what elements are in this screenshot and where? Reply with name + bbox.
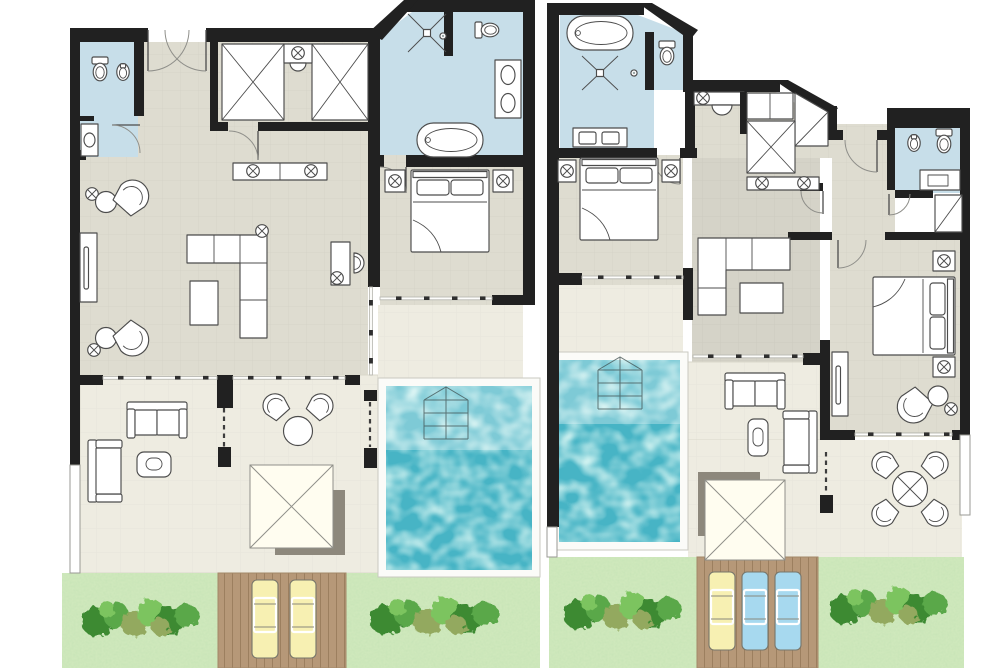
light-symbol-icon bbox=[697, 92, 710, 105]
toilet bbox=[92, 57, 108, 81]
light-symbol-icon bbox=[497, 175, 510, 188]
toilet bbox=[475, 22, 499, 38]
shower-drain bbox=[597, 70, 604, 77]
light-symbol-icon bbox=[798, 177, 811, 190]
bidet bbox=[908, 135, 920, 152]
floor-plan-canvas bbox=[0, 0, 1000, 668]
washbasin bbox=[602, 132, 619, 144]
wall-stub bbox=[740, 92, 747, 134]
light-symbol-icon bbox=[247, 165, 260, 178]
washbasin bbox=[84, 133, 95, 147]
double-bed-2 bbox=[873, 277, 955, 355]
sun-deck bbox=[218, 573, 346, 668]
villa-plan-left bbox=[62, 0, 540, 668]
garden-fence bbox=[70, 465, 80, 573]
outdoor-coffee-table bbox=[137, 452, 171, 477]
round-table bbox=[284, 417, 313, 446]
outdoor-coffee-table bbox=[748, 419, 768, 456]
bidet bbox=[117, 64, 129, 81]
terrace-strip bbox=[378, 305, 523, 378]
toilet bbox=[936, 129, 952, 153]
outdoor-sofa bbox=[725, 373, 785, 409]
garden-fence bbox=[960, 435, 970, 515]
villa-plan-right bbox=[547, 3, 970, 668]
light-symbol-icon bbox=[665, 165, 678, 178]
garden-fence bbox=[547, 527, 557, 557]
light-symbol-icon bbox=[561, 165, 574, 178]
side-table bbox=[96, 328, 117, 349]
floor-plan-image bbox=[0, 0, 1000, 668]
bathtub bbox=[417, 123, 483, 157]
washbasin-console bbox=[920, 170, 960, 190]
light-symbol-icon bbox=[938, 255, 951, 268]
outdoor-sofa bbox=[127, 402, 187, 438]
terrace-strip bbox=[557, 285, 683, 352]
garden-right bbox=[549, 557, 964, 668]
shower-head-icon bbox=[631, 70, 637, 76]
light-symbol-icon bbox=[331, 272, 344, 285]
light-symbol-icon bbox=[945, 403, 958, 416]
sun-lounger-blue bbox=[742, 572, 768, 650]
light-symbol-icon bbox=[256, 225, 269, 238]
side-table bbox=[96, 192, 117, 213]
sun-lounger-yellow bbox=[709, 572, 735, 650]
pool-right bbox=[552, 352, 688, 550]
double-bed bbox=[411, 170, 489, 252]
light-symbol-icon bbox=[389, 175, 402, 188]
washbasin bbox=[501, 66, 515, 85]
sun-lounger-blue bbox=[775, 572, 801, 650]
washbasin bbox=[579, 132, 596, 144]
coffee-table bbox=[740, 283, 783, 313]
sun-lounger-yellow bbox=[290, 580, 316, 658]
shower-head-icon bbox=[440, 33, 446, 39]
washbasin bbox=[501, 94, 515, 113]
outdoor-lounge-chair bbox=[88, 440, 122, 502]
outdoor-lounge-chair bbox=[783, 411, 817, 473]
light-symbol-icon bbox=[292, 47, 305, 60]
hallway-floor bbox=[832, 124, 895, 232]
coffee-table bbox=[190, 281, 218, 325]
pool-left bbox=[378, 378, 540, 577]
double-bed-1 bbox=[580, 158, 658, 240]
pool-shallow-end bbox=[386, 386, 532, 450]
bedroom-1-sliding-door bbox=[582, 276, 683, 279]
shower-drain bbox=[424, 30, 431, 37]
light-symbol-icon bbox=[756, 177, 769, 190]
toilet bbox=[659, 41, 675, 65]
sun-lounger-yellow bbox=[252, 580, 278, 658]
tv-icon bbox=[84, 247, 89, 289]
tv-icon bbox=[836, 366, 841, 404]
garden-left bbox=[62, 573, 540, 668]
light-symbol-icon bbox=[938, 361, 951, 374]
bathtub bbox=[567, 16, 633, 50]
side-table bbox=[928, 386, 948, 406]
light-symbol-icon bbox=[305, 165, 318, 178]
